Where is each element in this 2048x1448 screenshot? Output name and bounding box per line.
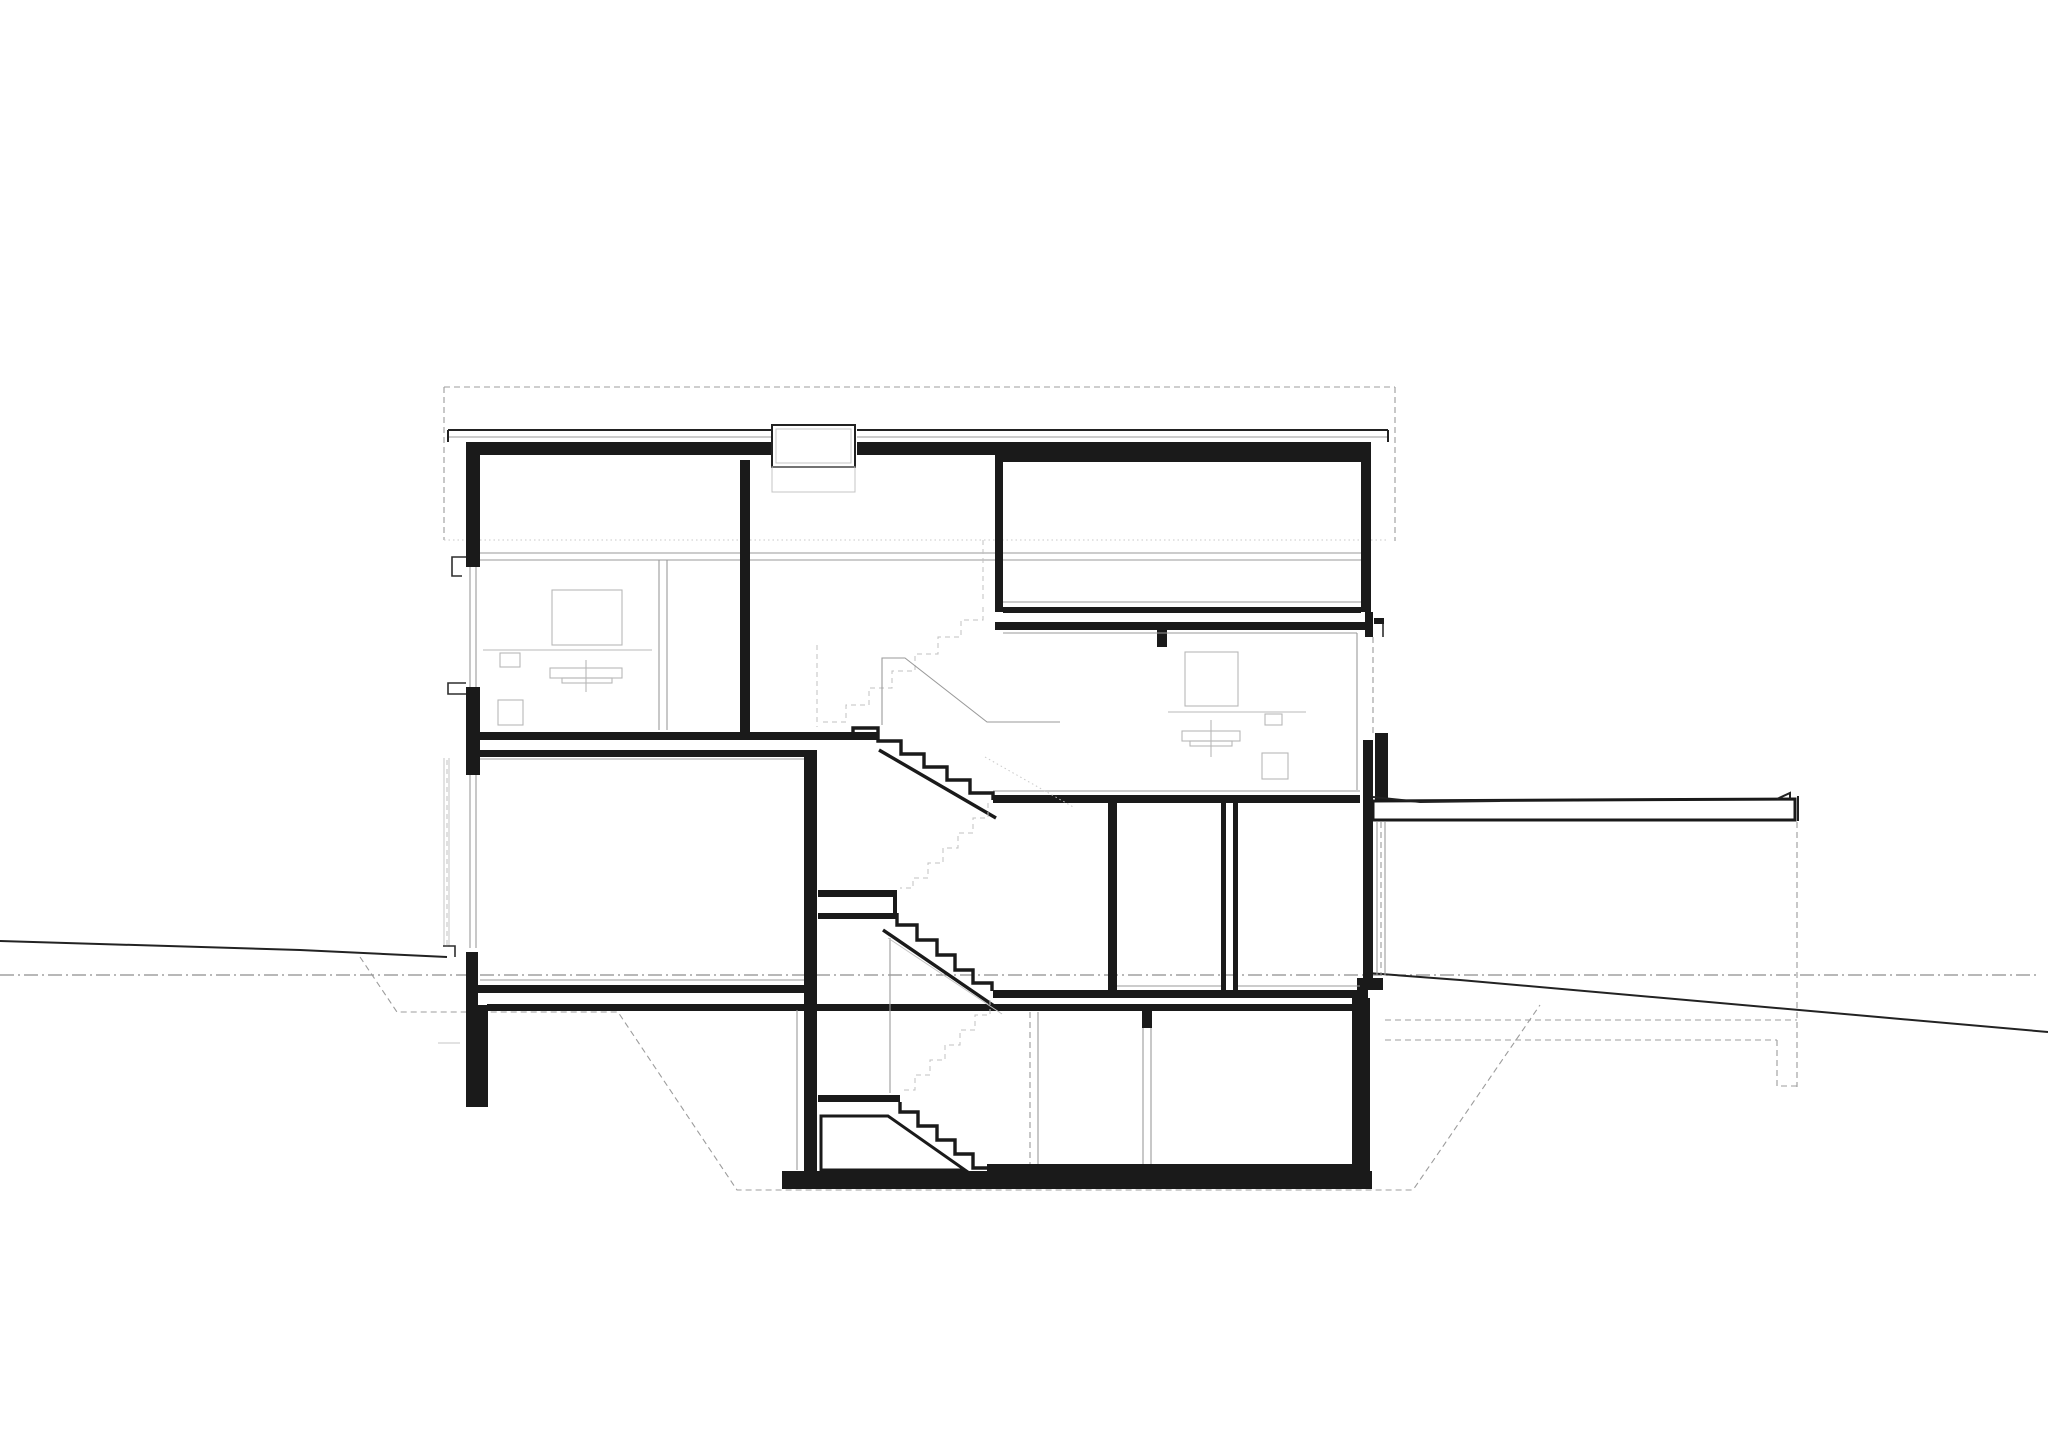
stair-flight-2 [897,913,992,991]
stair-landing-slab [818,890,897,897]
right-wall-foot [1357,978,1383,990]
suspended-room-ceiling [1003,455,1361,462]
stair-landing-slab [818,913,897,919]
suspended-room-wall-left [995,455,1003,612]
stair-landing-edge [893,890,897,915]
understair-storage [821,1116,965,1170]
monitor-mid-room [1185,652,1238,706]
skylight-curb [772,425,855,467]
upper-floor-slab [466,732,878,740]
left-wall-base [466,952,478,1005]
terrace-edge-detail [443,946,455,957]
right-wall-notch [1365,612,1373,637]
basement-ceiling-ledge [487,1004,1352,1011]
footing-projection-dash [1777,1040,1797,1086]
left-wall-upper [466,442,480,567]
stair-elevation-outline [882,658,1060,725]
mid-right-floor-slab [993,795,1360,803]
stair-up-hidden-dash [823,603,983,722]
desk-skirt-upper-room [562,678,612,683]
wall-frame-mid-room [1265,714,1282,725]
stair-flight-1-soffit [879,750,996,818]
basement-right-wall [1352,998,1370,1172]
stair-flight-2-shadow [888,938,1002,1014]
roof-slab [466,442,772,455]
wall-frame-upper-room [500,653,520,667]
right-wall-lower [1363,802,1373,978]
basement-floor [987,1164,1352,1171]
shaft-wall [1221,803,1226,990]
left-wall-mid [466,687,480,775]
roof-slab [857,442,1367,455]
skylight-shaft [772,467,855,492]
lower-wall [1108,803,1117,990]
window-sill-detail [448,683,466,694]
stair-mid-hidden-dash [900,803,988,888]
suspended-room-slab [995,622,1367,630]
ground-line-left [0,941,447,957]
cabinet-upper-room [498,700,523,725]
shaft-wall [1233,803,1238,990]
right-wall-upper [1361,442,1371,612]
right-window-head [1374,618,1384,624]
bridge-parapet-outer [1375,733,1388,802]
window-head-detail [452,557,466,576]
drawing-sheet [0,0,2048,1448]
bridge-parapet [1363,740,1373,802]
cabinet-mid-room [1262,753,1288,779]
stair-flight-2-soffit [883,930,1000,1010]
left-wall-footing [466,1005,488,1107]
basement-bottom-slab [782,1171,1372,1189]
mid-left-ceiling-slab [478,750,806,757]
mid-left-floor-slab [469,985,806,993]
skylight-glass [776,429,851,463]
lower-floor-slab [993,990,1368,998]
central-wall [804,750,817,1172]
ground-line-right [1368,973,2048,1032]
building-section-drawing [0,0,2048,1448]
interior-wall-upper [740,460,750,732]
stair-landing-slab [818,1095,900,1102]
basement-ceiling-stub [1142,1011,1152,1028]
stair-low-hidden-dash [900,1000,990,1090]
suspended-room-floor [1003,607,1361,613]
monitor-upper-room [552,590,622,645]
